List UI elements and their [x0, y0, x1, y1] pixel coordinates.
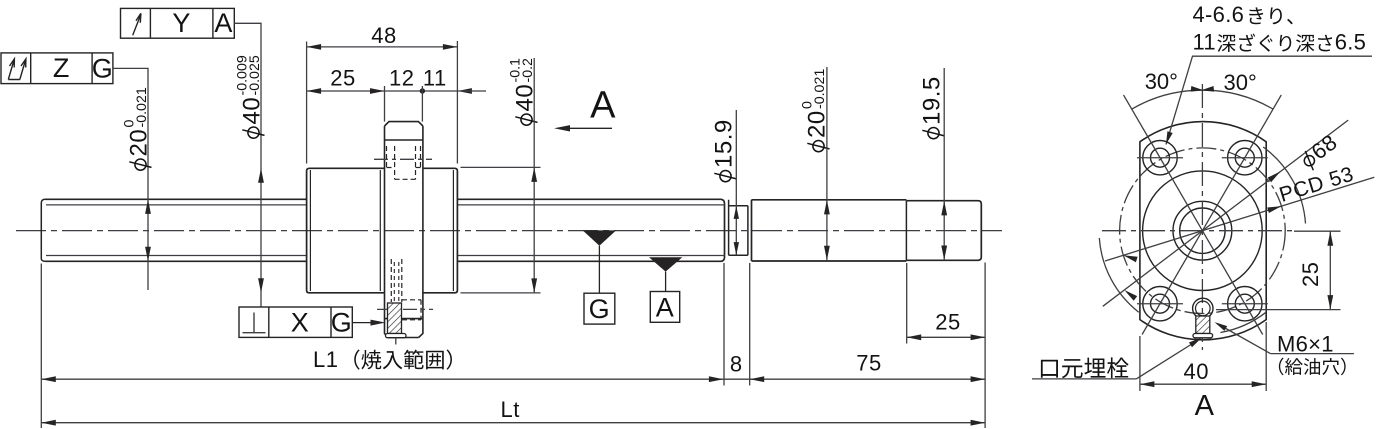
- svg-text:A: A: [214, 8, 233, 38]
- svg-text:8: 8: [730, 352, 743, 377]
- svg-text:M6×1: M6×1: [1277, 332, 1334, 357]
- svg-text:-0.021: -0.021: [134, 87, 150, 127]
- svg-text:11: 11: [423, 66, 447, 91]
- svg-text:30°: 30°: [1145, 69, 1178, 94]
- svg-text:15.9: 15.9: [711, 119, 738, 168]
- svg-text:4-6.6: 4-6.6: [1193, 2, 1245, 27]
- svg-text:Z: Z: [53, 53, 70, 83]
- svg-text:30°: 30°: [1224, 70, 1257, 95]
- svg-text:48: 48: [371, 23, 396, 48]
- svg-text:75: 75: [856, 351, 881, 376]
- svg-text:X: X: [291, 308, 310, 338]
- svg-text:Y: Y: [172, 8, 191, 38]
- svg-text:19.5: 19.5: [919, 76, 946, 125]
- svg-text:25: 25: [1298, 262, 1323, 287]
- svg-text:40: 40: [239, 97, 266, 125]
- svg-text:25: 25: [330, 66, 355, 91]
- svg-text:L1: L1: [313, 347, 338, 372]
- svg-text:G: G: [92, 54, 114, 84]
- svg-text:G: G: [331, 308, 353, 338]
- svg-text:A: A: [1195, 390, 1215, 422]
- svg-text:A: A: [590, 85, 616, 127]
- svg-text:6.5: 6.5: [1335, 30, 1366, 55]
- svg-text:12: 12: [389, 66, 414, 91]
- svg-text:-0.025: -0.025: [247, 55, 263, 95]
- svg-text:11: 11: [1193, 30, 1216, 55]
- svg-text:20: 20: [126, 129, 153, 157]
- svg-text:A: A: [656, 292, 675, 322]
- svg-text:-0.021: -0.021: [812, 69, 828, 109]
- svg-text:Lt: Lt: [501, 397, 520, 422]
- svg-text:40: 40: [1184, 359, 1209, 384]
- svg-text:G: G: [589, 294, 611, 324]
- svg-text:25: 25: [935, 310, 960, 335]
